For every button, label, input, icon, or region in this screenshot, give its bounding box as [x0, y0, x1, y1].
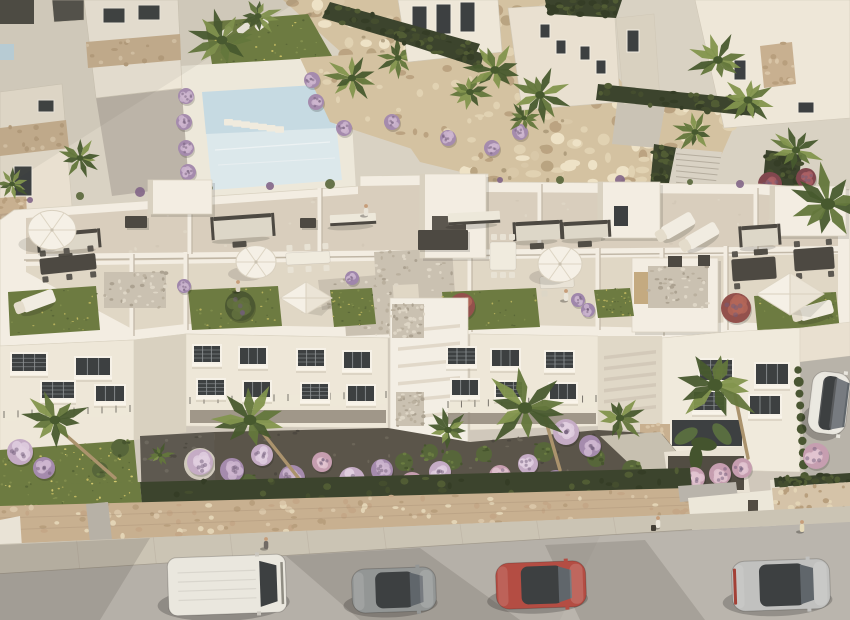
aerial-render-stage: Aerial render of a whitewashed Mediterra…	[0, 0, 850, 620]
aerial-render: Aerial render of a whitewashed Mediterra…	[0, 0, 850, 620]
light-overlay	[0, 0, 850, 620]
